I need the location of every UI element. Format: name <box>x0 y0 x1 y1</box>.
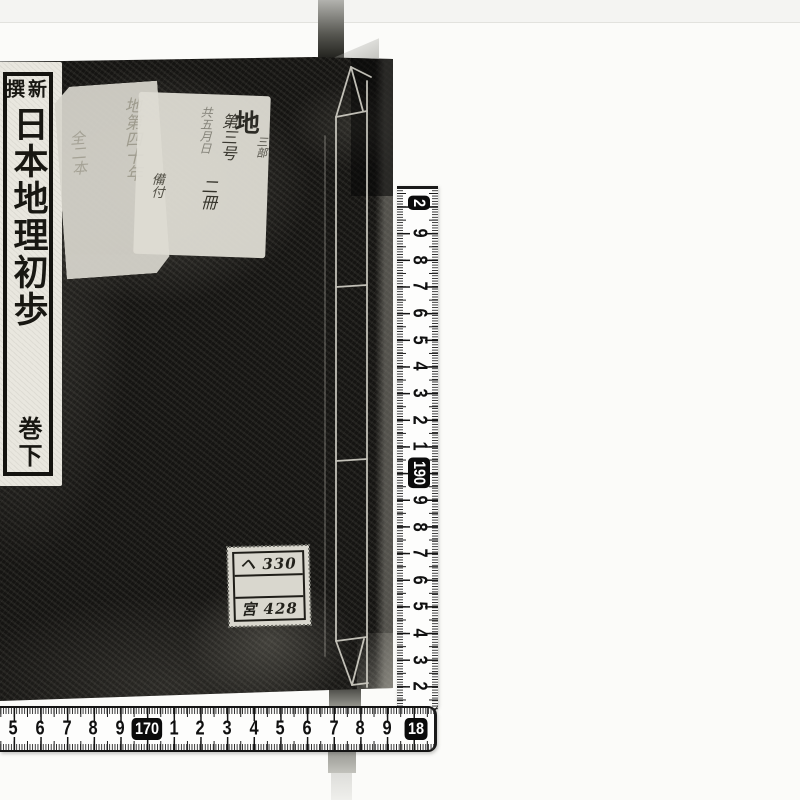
ruler-number: 2 <box>407 681 430 690</box>
ruler-number: 4 <box>407 628 430 637</box>
ruler-number: 1 <box>169 718 178 741</box>
spine-bottom-tab <box>329 688 361 708</box>
handwritten-left-column-2: 全二本 <box>68 130 86 176</box>
scanner-seam-line <box>0 22 800 23</box>
title-volume-text: 巻下 <box>16 416 40 470</box>
ruler-number: 2 <box>407 415 430 424</box>
horizontal-ruler: 5 6 7 8 9 170 1 2 3 4 5 6 7 8 9 18 <box>0 706 437 752</box>
ruler-number: 9 <box>407 495 430 504</box>
ruler-number: 8 <box>88 718 97 741</box>
ruler-number: 5 <box>407 335 430 344</box>
handwritten-note-column: 備付 <box>149 172 163 198</box>
stamp-row-3: 宮 428 <box>235 595 304 620</box>
book-top-right-shade <box>351 56 393 196</box>
ruler-number: 3 <box>222 718 231 741</box>
ruler-number: 5 <box>407 601 430 610</box>
title-label-border: 新 撰 日本地理初歩 巻下 <box>3 72 53 476</box>
handwritten-small-sub: 三部 <box>256 136 268 158</box>
ruler-number: 8 <box>407 255 430 264</box>
handwritten-number-column: 第三号 <box>219 113 237 162</box>
ruler-number: 8 <box>355 718 364 741</box>
ruler-number: 9 <box>115 718 124 741</box>
ruler-number: 3 <box>407 655 430 664</box>
spine-bottom-streak <box>331 773 352 800</box>
ruler-number: 9 <box>382 718 391 741</box>
ruler-number: 4 <box>249 718 258 741</box>
ruler-number-boxed: 2 <box>408 196 430 211</box>
ruler-number: 5 <box>275 718 284 741</box>
spine-bottom-tab-lower <box>328 752 356 773</box>
ruler-number-boxed: 190 <box>408 458 430 489</box>
ruler-number: 8 <box>407 522 430 531</box>
title-header-right-char: 新 <box>26 79 45 98</box>
ruler-number: 7 <box>407 281 430 290</box>
vertical-ruler: 2 9 8 7 6 5 4 3 2 1 190 9 8 7 6 5 4 3 2 <box>397 186 438 713</box>
catalog-stamp-table: ヘ 330 宮 428 <box>232 550 306 622</box>
ruler-number-boxed: 170 <box>132 718 163 740</box>
ruler-number: 3 <box>407 388 430 397</box>
book-fore-edge-corner <box>357 633 393 695</box>
ruler-number: 6 <box>407 308 430 317</box>
ruler-number: 6 <box>407 575 430 584</box>
ruler-number-boxed: 18 <box>405 718 428 740</box>
ruler-number: 4 <box>407 361 430 370</box>
ruler-number: 6 <box>35 718 44 741</box>
ruler-number: 7 <box>329 718 338 741</box>
ruler-number: 7 <box>407 548 430 557</box>
scan-top-band <box>0 0 800 22</box>
ruler-number: 9 <box>407 228 430 237</box>
catalog-stamp: ヘ 330 宮 428 <box>227 545 311 627</box>
handwritten-label-right: 地 三部 第三号 共五月日 二冊 備付 <box>133 92 271 259</box>
stamp-row-1: ヘ 330 <box>234 552 303 575</box>
title-label: 新 撰 日本地理初歩 巻下 <box>0 62 62 486</box>
ruler-number: 6 <box>302 718 311 741</box>
title-header-left-char: 撰 <box>4 79 23 98</box>
ruler-number: 2 <box>195 718 204 741</box>
ruler-number: 1 <box>407 441 430 450</box>
ruler-number: 7 <box>62 718 71 741</box>
stamp-row-2 <box>235 573 304 597</box>
handwritten-volume-count: 二冊 <box>199 178 216 211</box>
handwritten-large-char: 地 <box>234 103 260 140</box>
title-main-text: 日本地理初歩 <box>11 106 46 328</box>
ruler-number: 5 <box>8 718 17 741</box>
handwritten-faint-column: 共五月日 <box>199 106 213 154</box>
spine-top-tab <box>318 0 344 58</box>
